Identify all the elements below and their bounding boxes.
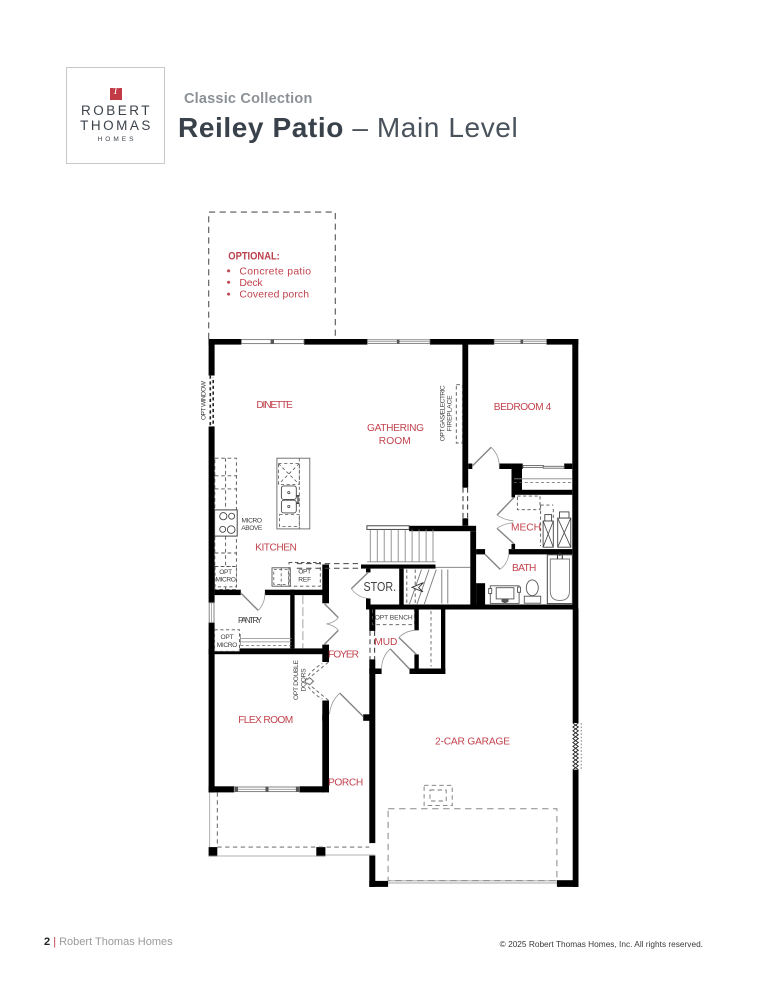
svg-text:PANTRY: PANTRY: [238, 616, 263, 625]
svg-text:FIREPLACE: FIREPLACE: [447, 395, 454, 432]
svg-text:MICRO: MICRO: [242, 518, 262, 525]
svg-text:FOYER: FOYER: [328, 649, 359, 660]
svg-text:REF: REF: [298, 576, 311, 583]
svg-text:ABOVE: ABOVE: [241, 525, 263, 532]
svg-text:OPT: OPT: [298, 569, 311, 576]
svg-text:MECH: MECH: [511, 522, 541, 533]
svg-text:OPTIONAL:: OPTIONAL:: [228, 250, 279, 262]
svg-text:GATHERING: GATHERING: [367, 423, 424, 434]
svg-text:Deck: Deck: [239, 278, 263, 289]
svg-text:OPT BENCH: OPT BENCH: [375, 614, 413, 621]
svg-text:OPT: OPT: [219, 569, 232, 576]
svg-text:STOR.: STOR.: [364, 580, 397, 594]
svg-text:ROOM: ROOM: [379, 436, 411, 447]
svg-text:DINETTE: DINETTE: [256, 400, 293, 411]
svg-text:DOORS: DOORS: [300, 668, 307, 692]
svg-text:OPT: OPT: [221, 634, 234, 641]
svg-text:KITCHEN: KITCHEN: [255, 543, 297, 554]
svg-text:MICRO: MICRO: [215, 577, 236, 584]
svg-text:OPT GAS/ELECTRIC: OPT GAS/ELECTRIC: [440, 385, 447, 441]
svg-text:OPT DOUBLE: OPT DOUBLE: [293, 659, 300, 700]
svg-text:FLEX ROOM: FLEX ROOM: [238, 715, 293, 726]
svg-text:PORCH: PORCH: [328, 778, 363, 789]
svg-text:MICRO: MICRO: [217, 642, 238, 649]
svg-text:2-CAR GARAGE: 2-CAR GARAGE: [435, 736, 510, 747]
svg-text:MUD: MUD: [374, 637, 397, 648]
svg-text:BEDROOM 4: BEDROOM 4: [494, 402, 552, 413]
svg-text:BATH: BATH: [512, 563, 536, 574]
svg-text:Covered porch: Covered porch: [239, 290, 309, 301]
svg-text:Concrete patio: Concrete patio: [239, 266, 311, 277]
svg-text:OPT WINDOW: OPT WINDOW: [201, 380, 208, 420]
